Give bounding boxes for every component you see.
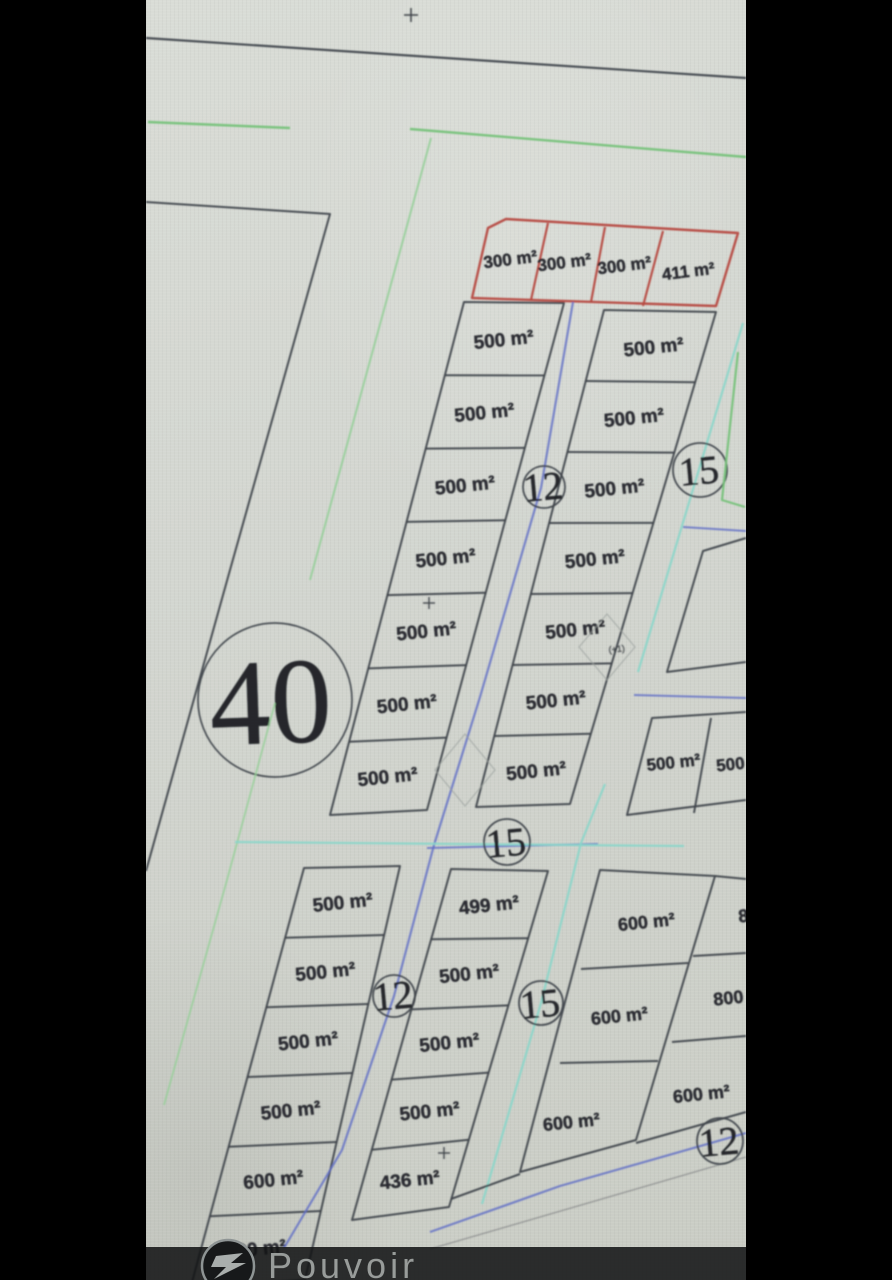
svg-text:500 m²: 500 m² [415, 545, 477, 572]
svg-text:500 m²: 500 m² [376, 691, 438, 718]
svg-text:500 m²: 500 m² [564, 546, 626, 573]
svg-text:12: 12 [521, 462, 565, 510]
svg-text:300 m²: 300 m² [536, 250, 592, 275]
svg-text:600 m²: 600 m² [590, 1003, 649, 1029]
svg-text:40: 40 [207, 633, 334, 772]
svg-text:500: 500 [715, 754, 745, 776]
svg-text:411 m²: 411 m² [661, 259, 716, 284]
svg-text:500 m²: 500 m² [438, 961, 500, 988]
svg-text:500 m²: 500 m² [473, 327, 535, 354]
svg-text:600 m²: 600 m² [672, 1081, 731, 1107]
svg-text:499 m²: 499 m² [458, 892, 520, 919]
svg-text:500 m²: 500 m² [434, 473, 496, 500]
svg-text:12: 12 [371, 971, 415, 1019]
svg-text:500 m²: 500 m² [277, 1028, 339, 1055]
svg-text:12: 12 [697, 1117, 741, 1165]
svg-text:Pouvoir: Pouvoir [268, 1245, 418, 1280]
svg-text:600 m²: 600 m² [242, 1167, 304, 1194]
svg-text:8: 8 [737, 906, 749, 927]
svg-text:300 m²: 300 m² [482, 247, 538, 272]
svg-text:300 m²: 300 m² [596, 253, 652, 278]
svg-text:(+1): (+1) [608, 643, 625, 655]
svg-text:500 m²: 500 m² [544, 617, 606, 644]
svg-text:500 m²: 500 m² [583, 476, 645, 503]
svg-text:600 m²: 600 m² [617, 909, 676, 935]
svg-text:500 m²: 500 m² [418, 1030, 480, 1057]
svg-text:500 m²: 500 m² [312, 890, 374, 917]
svg-text:500 m²: 500 m² [453, 400, 515, 427]
svg-text:15: 15 [677, 446, 721, 494]
svg-text:500 m²: 500 m² [505, 758, 567, 785]
svg-text:600 m²: 600 m² [542, 1109, 601, 1135]
svg-text:500 m²: 500 m² [603, 405, 665, 432]
svg-text:436 m²: 436 m² [379, 1167, 441, 1194]
svg-text:500 m²: 500 m² [399, 1098, 461, 1125]
svg-text:500 m²: 500 m² [395, 618, 457, 645]
svg-text:500 m²: 500 m² [623, 334, 685, 361]
svg-text:500 m²: 500 m² [646, 750, 702, 775]
svg-text:500 m²: 500 m² [525, 687, 587, 714]
svg-text:500 m²: 500 m² [294, 959, 356, 986]
svg-text:500 m²: 500 m² [357, 764, 419, 791]
svg-text:15: 15 [484, 818, 528, 866]
svg-text:800: 800 [712, 987, 744, 1010]
svg-text:15: 15 [518, 979, 562, 1027]
svg-text:500 m²: 500 m² [260, 1098, 322, 1125]
